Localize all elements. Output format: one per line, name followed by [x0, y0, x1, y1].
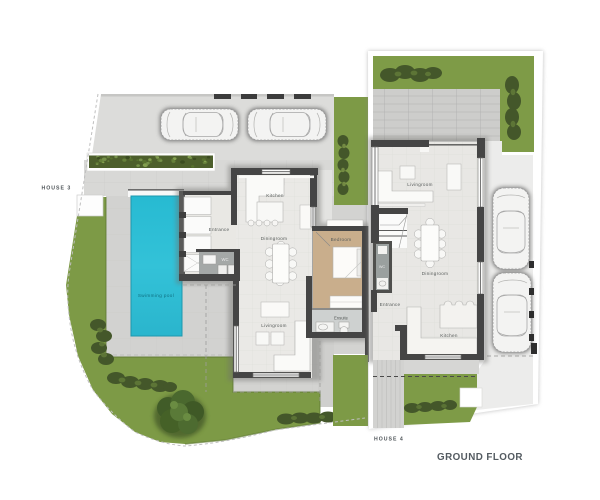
svg-text:Ensuite: Ensuite: [334, 316, 349, 321]
svg-text:HOUSE 3: HOUSE 3: [42, 186, 72, 192]
svg-text:Livingroom: Livingroom: [407, 182, 432, 187]
svg-text:Kitchen: Kitchen: [440, 333, 458, 338]
svg-text:WC: WC: [222, 257, 229, 262]
svg-text:Entrance: Entrance: [380, 302, 401, 307]
svg-text:Kitchen: Kitchen: [266, 193, 284, 198]
svg-text:Diningroom: Diningroom: [261, 236, 288, 241]
svg-text:HOUSE 4: HOUSE 4: [374, 437, 404, 443]
svg-text:Livingroom: Livingroom: [261, 323, 286, 328]
svg-text:GROUND FLOOR: GROUND FLOOR: [437, 452, 523, 463]
svg-text:Entrance: Entrance: [209, 227, 230, 232]
svg-text:Diningroom: Diningroom: [422, 271, 449, 276]
svg-text:Swimming pool: Swimming pool: [138, 293, 174, 298]
svg-text:WC: WC: [379, 265, 386, 269]
svg-text:Bedroom: Bedroom: [331, 237, 352, 242]
